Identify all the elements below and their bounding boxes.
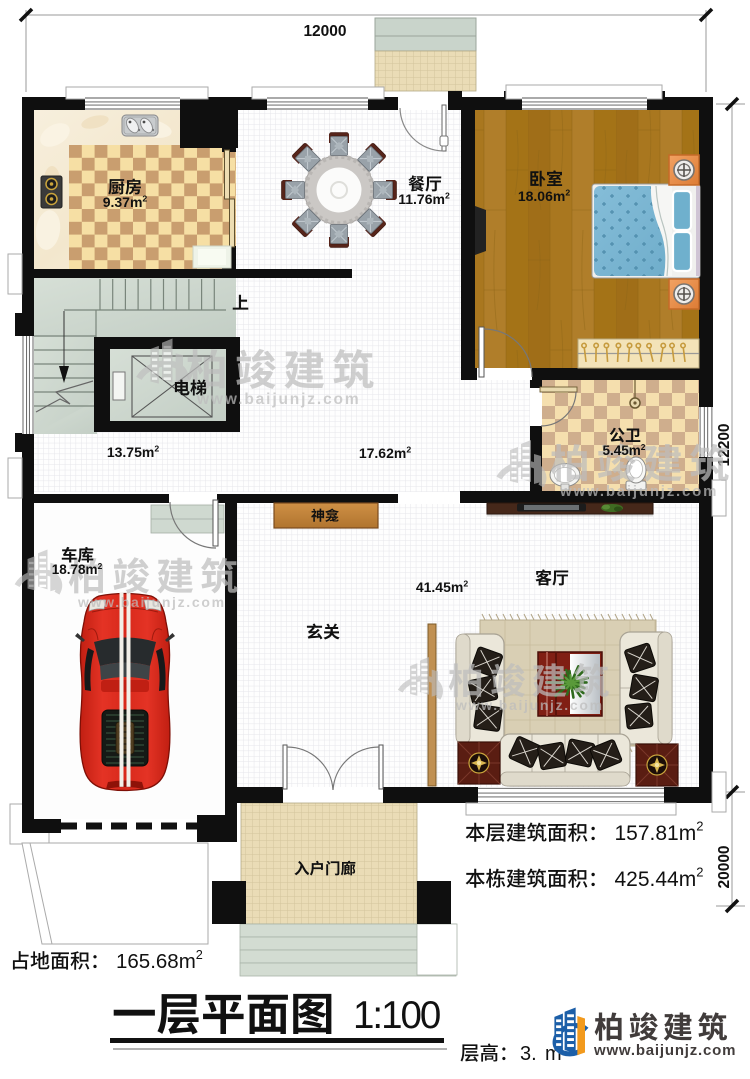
svg-text:1:100: 1:100 [353, 994, 440, 1037]
svg-text:3.: 3. [520, 1043, 537, 1065]
svg-text:18.78m2: 18.78m2 [52, 561, 103, 577]
svg-text:41.45m2: 41.45m2 [416, 579, 468, 595]
svg-text:20000: 20000 [716, 845, 733, 888]
svg-text:18.06m2: 18.06m2 [518, 188, 570, 204]
svg-text:13.75m2: 13.75m2 [107, 444, 159, 460]
svg-text:17.62m2: 17.62m2 [359, 445, 411, 461]
svg-text:www.baijunjz.com: www.baijunjz.com [455, 697, 604, 713]
svg-text:9.37m2: 9.37m2 [103, 194, 148, 210]
svg-text:5.45m2: 5.45m2 [603, 442, 646, 458]
svg-text:165.68m2: 165.68m2 [116, 948, 203, 973]
svg-text:www.baijunjz.com: www.baijunjz.com [559, 483, 718, 500]
svg-text:157.81m2: 157.81m2 [615, 819, 704, 846]
svg-text:www.baijunjz.com: www.baijunjz.com [77, 594, 226, 610]
svg-text:11.76m2: 11.76m2 [398, 191, 450, 207]
svg-text:425.44m2: 425.44m2 [615, 865, 704, 892]
svg-text:www.baijunjz.com: www.baijunjz.com [196, 391, 361, 408]
svg-text:www.baijunjz.com: www.baijunjz.com [593, 1042, 736, 1059]
svg-text:12000: 12000 [303, 23, 346, 40]
